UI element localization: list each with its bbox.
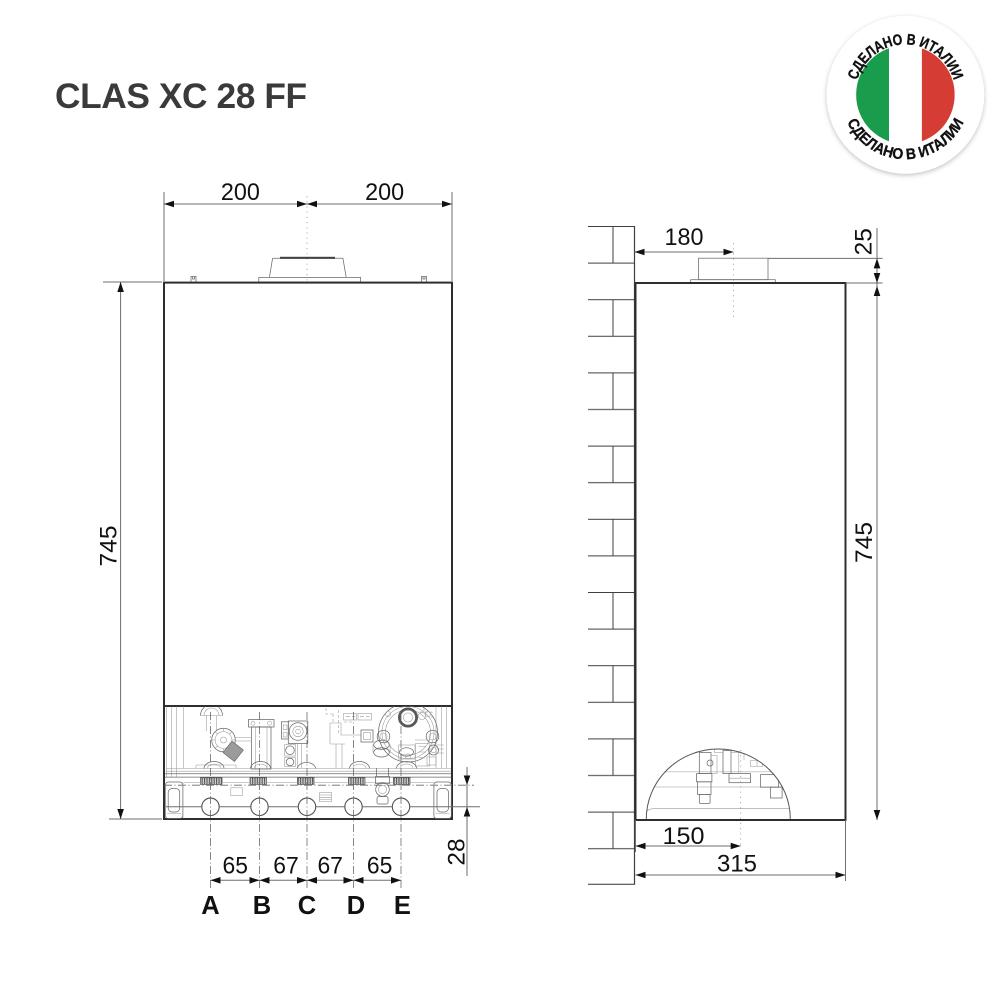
- svg-text:180: 180: [665, 224, 704, 251]
- svg-text:150: 150: [663, 823, 705, 850]
- svg-text:745: 745: [96, 526, 123, 567]
- svg-text:67: 67: [273, 853, 299, 880]
- svg-text:67: 67: [317, 853, 343, 880]
- svg-text:C: C: [298, 892, 316, 920]
- svg-text:200: 200: [221, 179, 260, 206]
- svg-text:A: A: [201, 892, 219, 920]
- svg-text:E: E: [394, 892, 411, 920]
- svg-text:CLAS XC 28 FF: CLAS XC 28 FF: [55, 77, 307, 116]
- svg-text:B: B: [253, 892, 271, 920]
- svg-text:315: 315: [717, 851, 757, 878]
- svg-text:25: 25: [851, 228, 878, 255]
- svg-text:745: 745: [851, 522, 878, 563]
- svg-text:D: D: [347, 892, 365, 920]
- svg-text:28: 28: [444, 838, 471, 865]
- svg-text:65: 65: [223, 853, 249, 880]
- svg-text:200: 200: [365, 179, 404, 206]
- svg-text:65: 65: [367, 853, 393, 880]
